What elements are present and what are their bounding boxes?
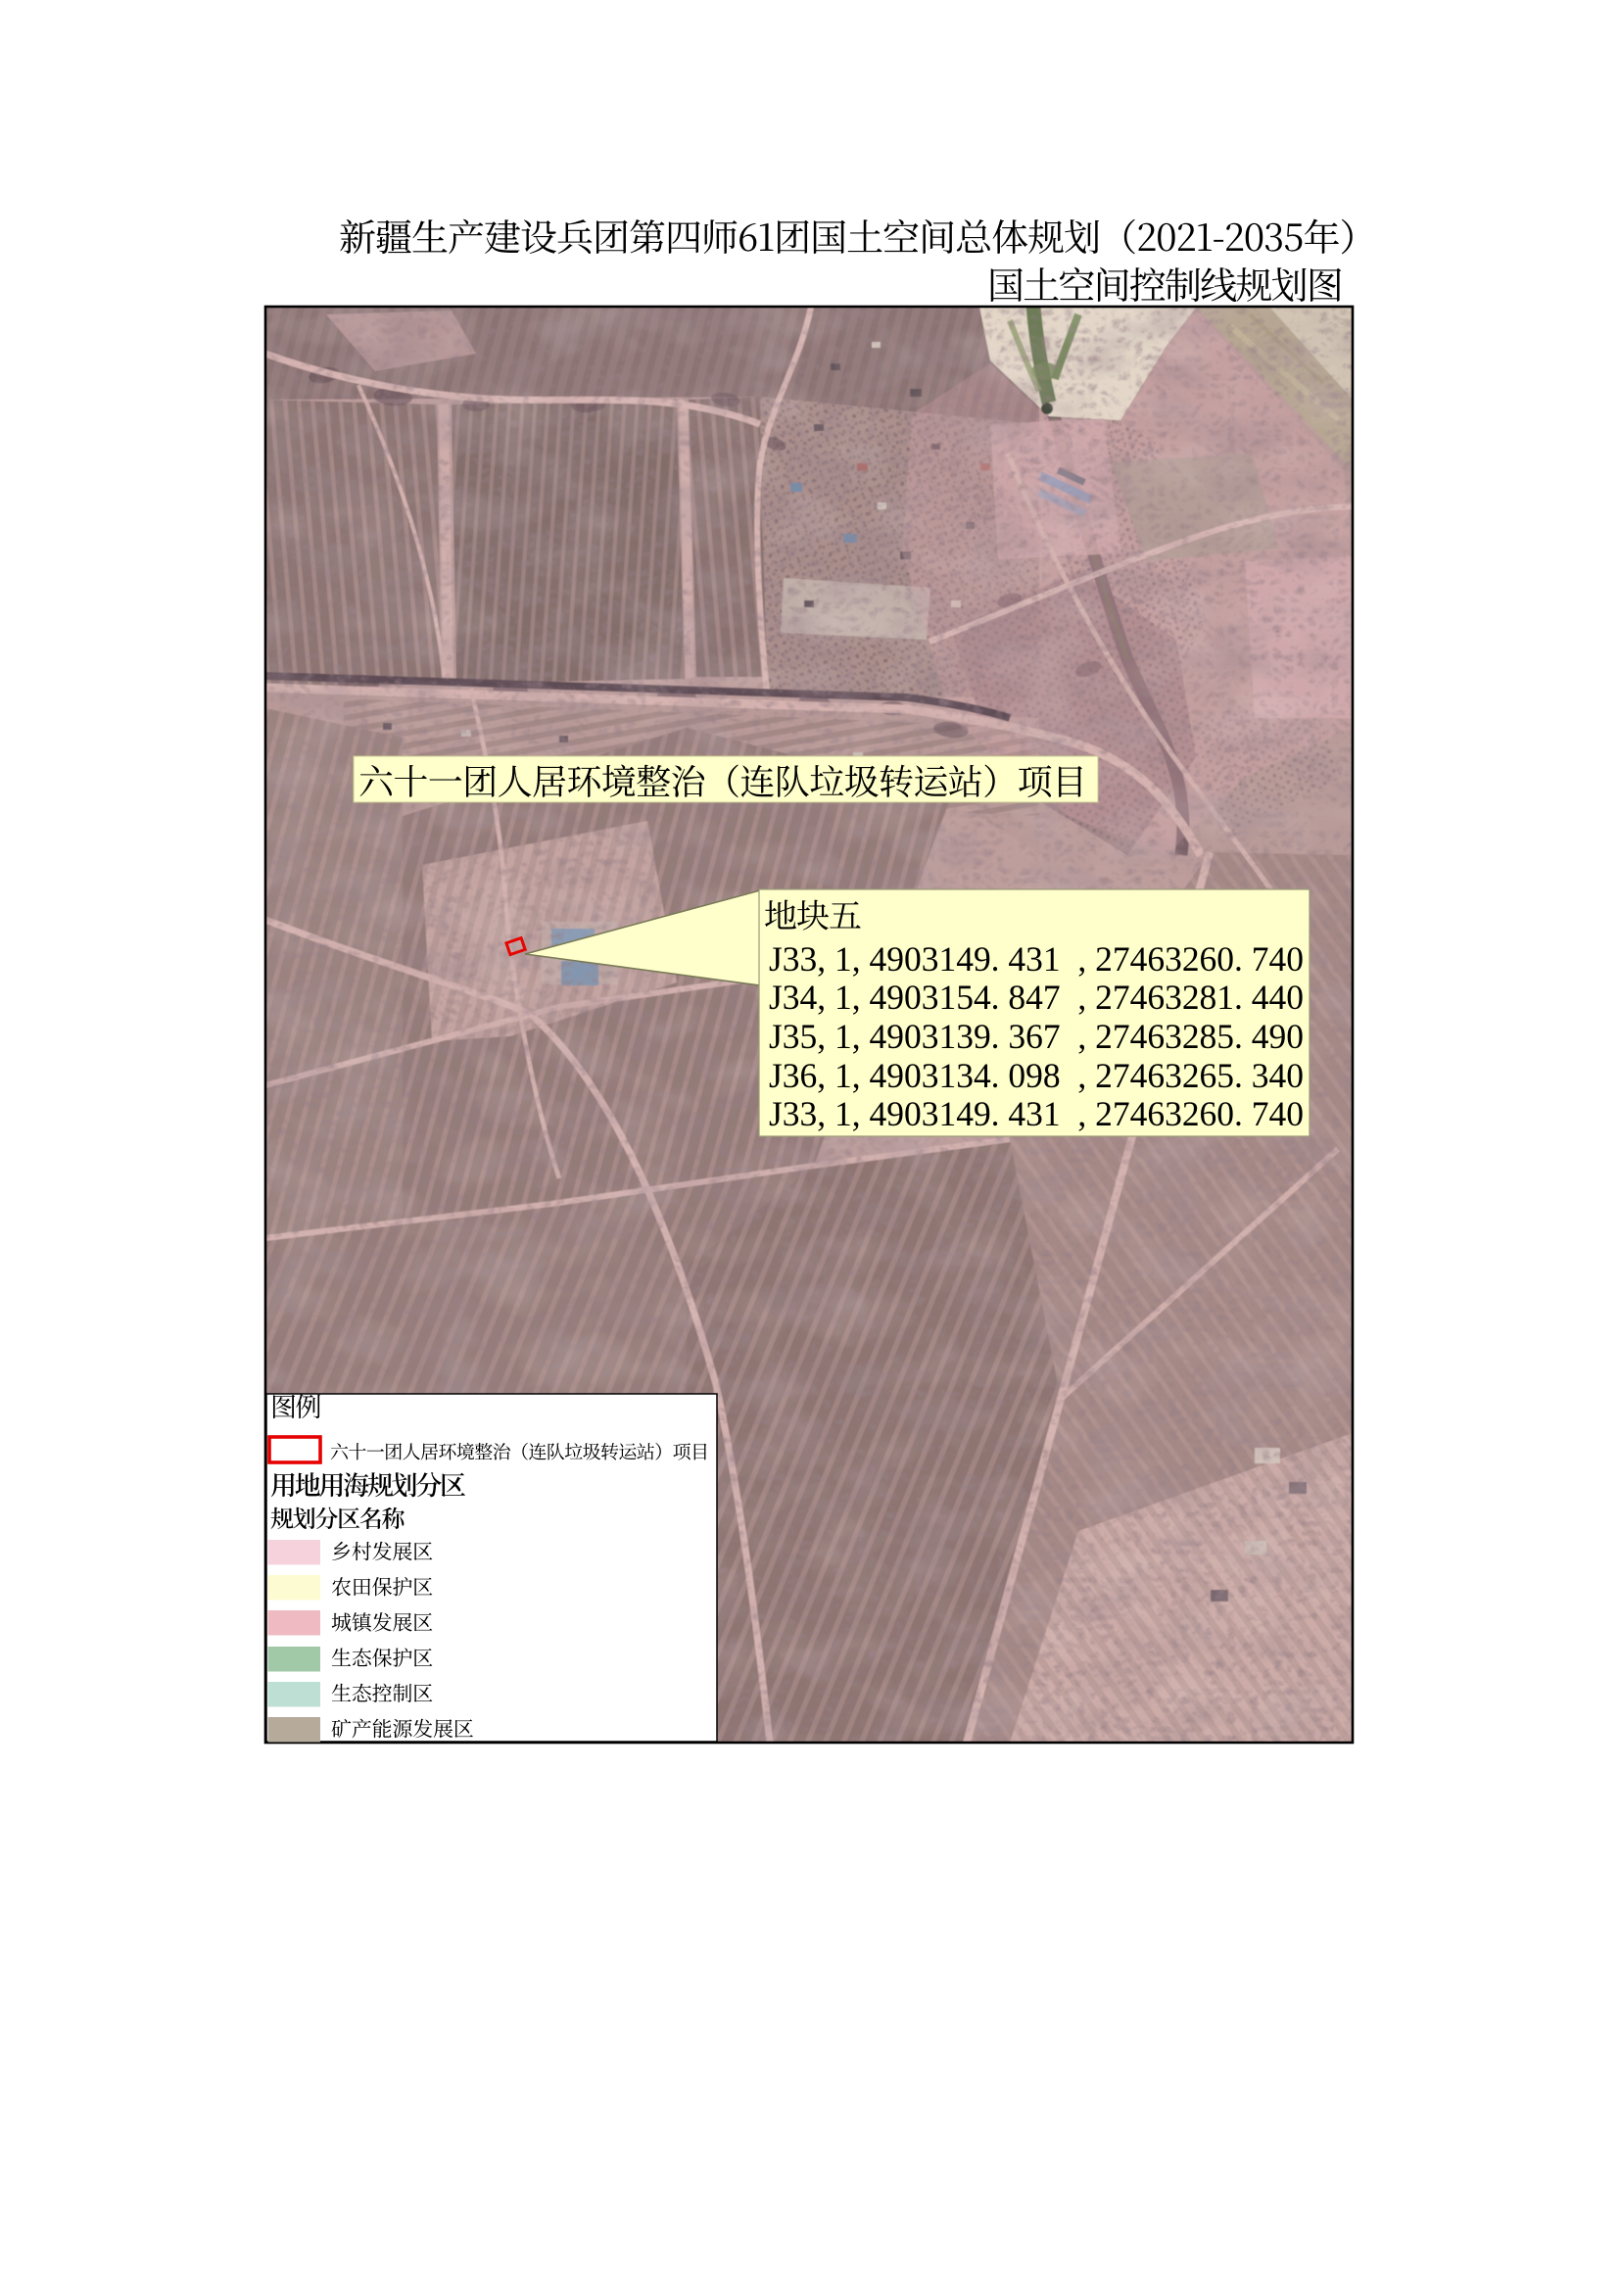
- svg-text:J33, 1, 4903149. 431 , 274632: J33, 1, 4903149. 431 , 27463260. 740: [769, 939, 1304, 979]
- svg-text:J35, 1, 4903139. 367 , 274632: J35, 1, 4903139. 367 , 27463285. 490: [769, 1017, 1304, 1056]
- svg-text:J36, 1, 4903134. 098 , 274632: J36, 1, 4903134. 098 , 27463265. 340: [769, 1056, 1304, 1095]
- svg-text:J34, 1, 4903154. 847 , 274632: J34, 1, 4903154. 847 , 27463281. 440: [769, 978, 1304, 1017]
- svg-text:J33, 1, 4903149. 431 , 274632: J33, 1, 4903149. 431 , 27463260. 740: [769, 1094, 1304, 1133]
